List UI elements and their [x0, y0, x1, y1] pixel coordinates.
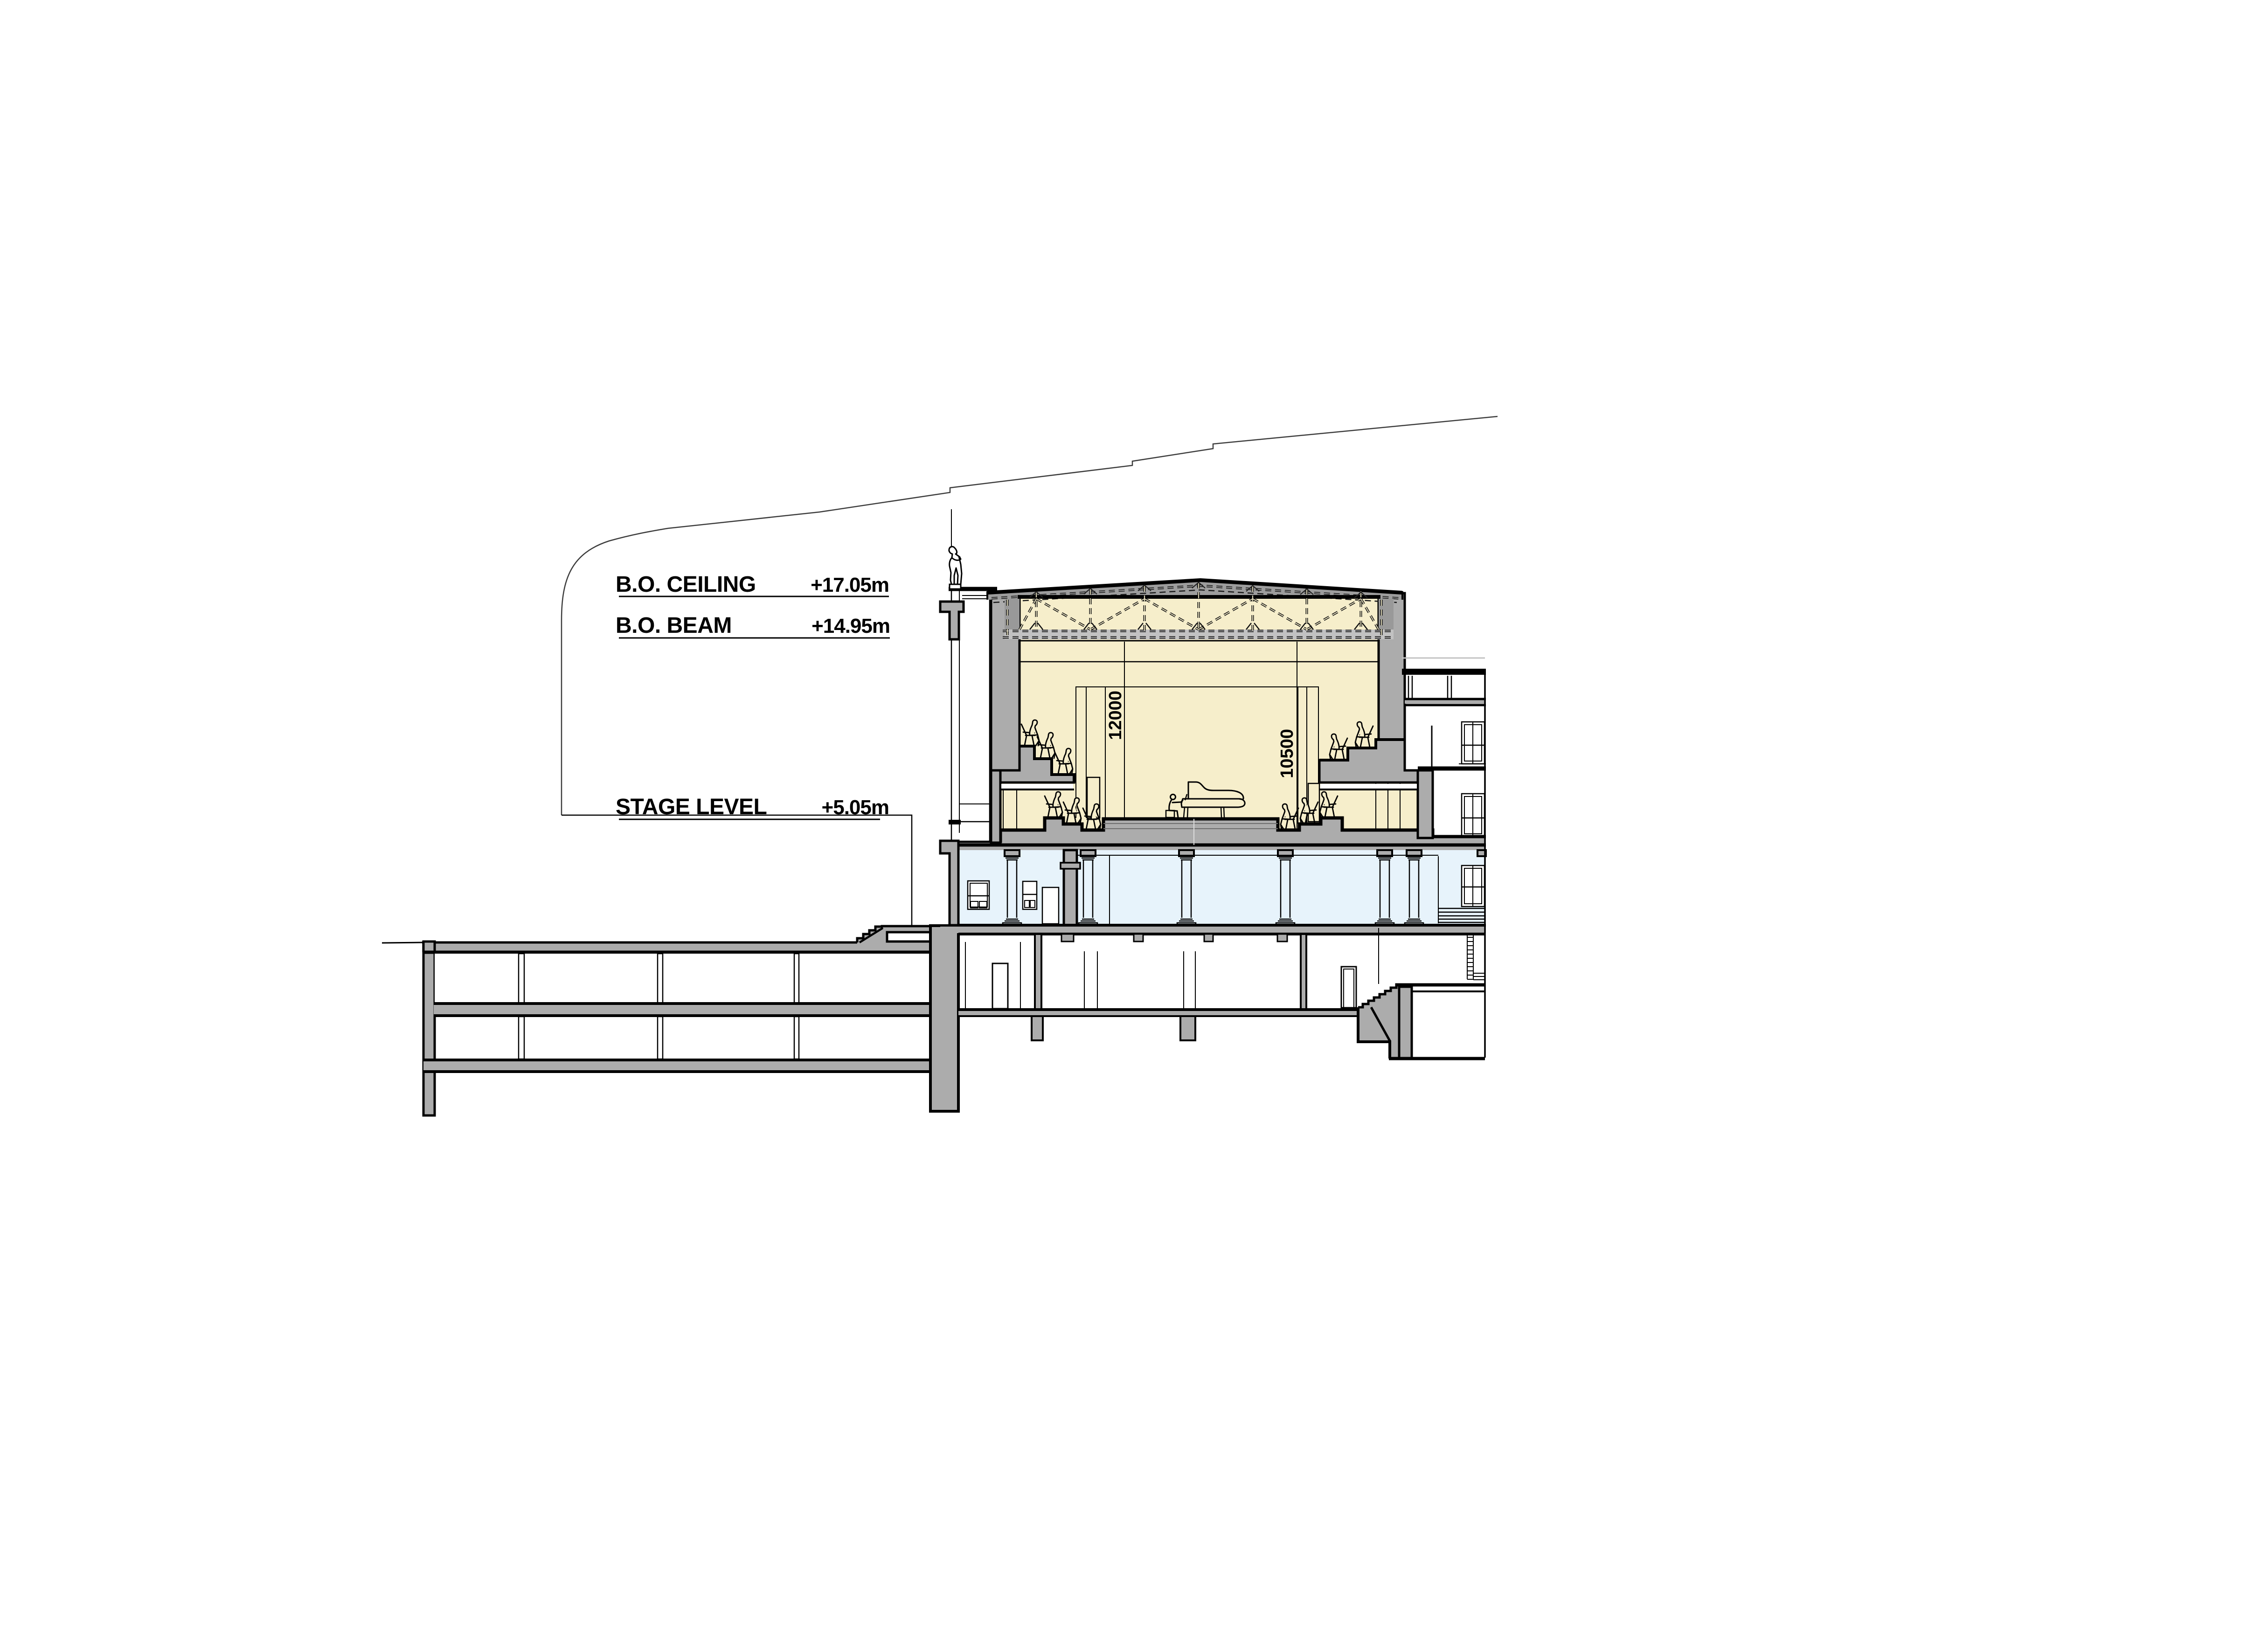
svg-text:+5.05m: +5.05m — [822, 796, 889, 819]
svg-text:+14.95m: +14.95m — [811, 615, 890, 637]
svg-text:STAGE LEVEL: STAGE LEVEL — [616, 795, 767, 819]
svg-text:B.O. BEAM: B.O. BEAM — [616, 613, 732, 638]
svg-text:12000: 12000 — [1106, 691, 1125, 740]
svg-text:10500: 10500 — [1277, 729, 1297, 778]
svg-text:B.O. CEILING: B.O. CEILING — [616, 572, 756, 597]
svg-text:+17.05m: +17.05m — [811, 574, 889, 596]
